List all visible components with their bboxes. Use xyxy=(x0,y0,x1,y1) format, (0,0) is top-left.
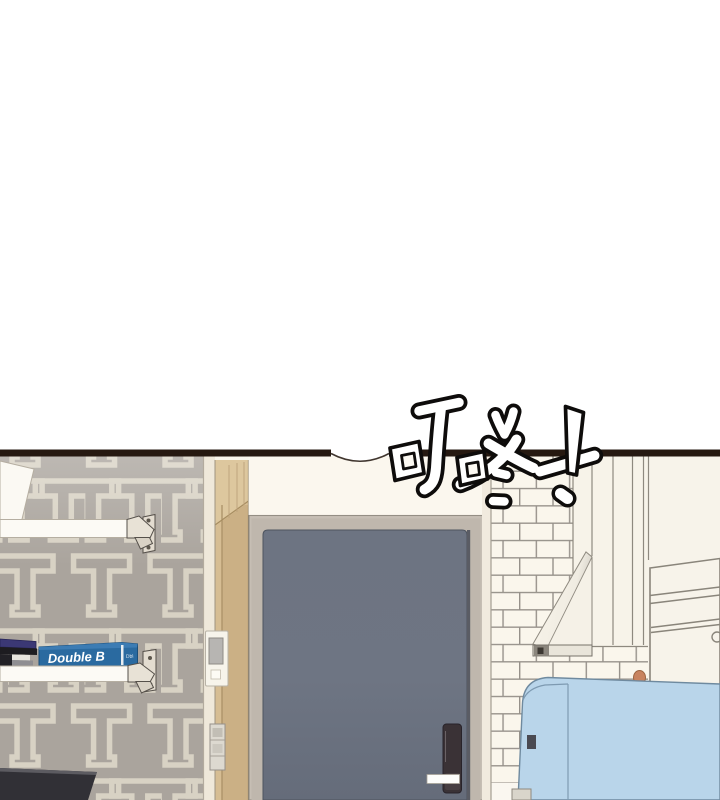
svg-text:Double B: Double B xyxy=(47,649,105,666)
svg-text:Dbl: Dbl xyxy=(126,654,134,660)
